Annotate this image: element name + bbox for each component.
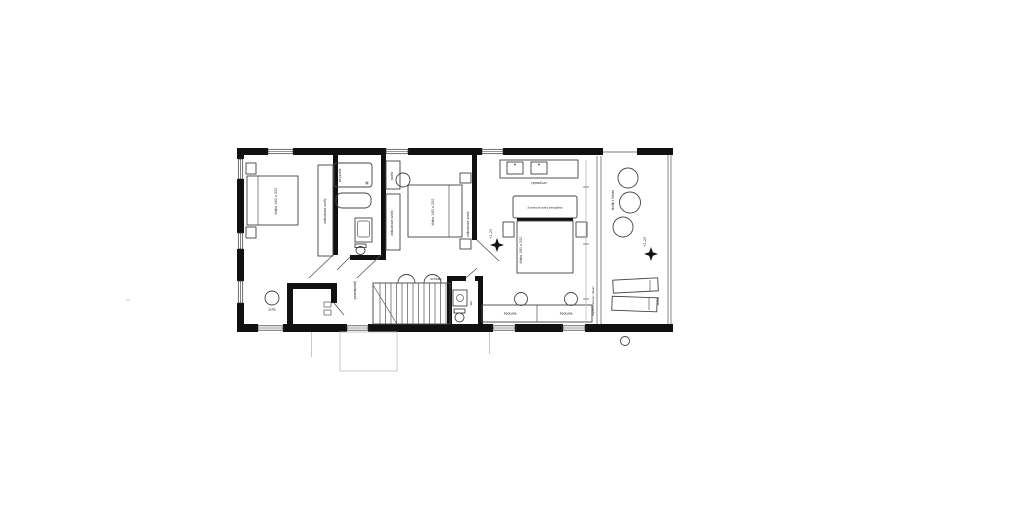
hallway-label: przedpokój	[353, 281, 357, 300]
terrace: stolik i fotele +1,20 leżaki	[603, 152, 671, 324]
wall-segment	[237, 148, 244, 159]
wall-segment	[283, 324, 347, 332]
wall-segment	[287, 283, 293, 324]
wall-segment	[585, 324, 673, 332]
sun-loungers: leżaki	[612, 278, 660, 312]
faucet	[514, 164, 516, 166]
lounger	[612, 296, 657, 312]
window	[238, 281, 242, 303]
bathtub	[336, 193, 371, 208]
wc-label: WC	[469, 300, 473, 305]
nightstand	[460, 173, 471, 183]
nightstand	[503, 222, 514, 237]
window	[238, 159, 242, 179]
door-leaf	[334, 303, 344, 315]
decor-bowl	[565, 293, 578, 306]
exterior-walls	[237, 148, 673, 332]
washbasin	[358, 221, 370, 237]
level-master-label: +1,20	[489, 229, 493, 239]
wc-basin-bowl	[457, 295, 464, 302]
staircase: schody	[373, 275, 450, 325]
wall-segment	[637, 148, 673, 155]
wall-segment	[237, 249, 244, 281]
terrace-seating-label: stolik i fotele	[611, 190, 615, 211]
interior-walls	[287, 155, 483, 324]
pouf	[265, 291, 279, 305]
bedroom1-bed-label: łóżko 160 x 200	[274, 188, 278, 215]
vanity-counter	[500, 160, 578, 178]
wall-segment	[287, 283, 337, 289]
dresser-left-label: komoda	[504, 312, 517, 316]
wall-segment	[515, 324, 563, 332]
hallway: przedpokój	[353, 281, 357, 300]
downpipe	[621, 337, 630, 346]
decor-bowl	[515, 293, 528, 306]
window	[493, 326, 515, 330]
nightstand	[246, 227, 256, 238]
wc: WC	[453, 290, 473, 322]
wc-toilet-tank	[454, 309, 465, 313]
window	[258, 326, 283, 330]
vanity-label: umywalki	[531, 181, 546, 185]
wc-washbasin	[453, 290, 467, 306]
bed	[408, 185, 462, 237]
level-terrace-label: +1,20	[643, 237, 647, 247]
glazed-wall	[597, 156, 601, 324]
outside-elements	[126, 300, 630, 371]
drawing-sheet: łóżko 160 x 200 zabudowa szafy pufa prys…	[0, 0, 1024, 523]
shower-label: prysznic	[338, 168, 342, 181]
window	[268, 149, 293, 153]
window	[563, 326, 585, 330]
dresser-right-label: komoda	[560, 312, 573, 316]
entry-porch	[340, 332, 397, 371]
chair-backrest-arc	[614, 217, 629, 223]
master-bed-label: łóżko 180 x 200	[519, 237, 523, 264]
bedroom1-wardrobe-label: zabudowa szafy	[323, 198, 327, 224]
round-table	[620, 192, 641, 213]
bathroom: prysznic	[334, 163, 372, 255]
window	[238, 233, 242, 249]
window	[386, 149, 408, 153]
shelf	[324, 310, 331, 315]
bedroom2-wardrobe-right-label: zabudowa szafy	[466, 211, 470, 237]
door-leaf	[309, 255, 333, 278]
wall-segment	[237, 179, 244, 233]
shower-drain	[366, 182, 368, 184]
lounger	[613, 278, 659, 293]
window	[482, 149, 503, 153]
nightstand	[246, 163, 256, 174]
wall-segment	[503, 148, 603, 155]
bed	[247, 176, 298, 225]
stair-treads	[380, 283, 446, 324]
bedroom2-closet-label: szafa	[390, 172, 394, 180]
pouf-label: pufa	[268, 308, 275, 312]
stairs-winder-line	[373, 285, 397, 324]
wall-segment	[293, 148, 386, 155]
loungers-label: leżaki	[656, 297, 660, 306]
wall-segment	[472, 155, 477, 240]
wc-toilet-bowl	[455, 313, 464, 322]
storage-room	[324, 302, 331, 315]
nightstand	[576, 222, 587, 237]
railing-arc	[398, 275, 415, 284]
toilet-tank	[355, 244, 366, 248]
window	[347, 326, 368, 330]
floor-plan-drawing: łóżko 160 x 200 zabudowa szafy pufa prys…	[0, 0, 1024, 523]
wall-segment	[331, 283, 337, 303]
bedroom2-bed-label: łóżko 160 x 200	[431, 199, 435, 226]
bedroom2: szafa zabudowa szafy łóżko 160 x 200 zab…	[386, 161, 471, 250]
wall-segment	[475, 276, 483, 281]
faucet	[538, 164, 540, 166]
door-leaf	[337, 257, 350, 270]
level-marker-star	[644, 247, 658, 261]
wall-segment	[237, 303, 244, 332]
master-bedroom: umywalki zagłówek tapicerowany łóżko 180…	[482, 160, 595, 322]
chair-backrest-arc	[619, 168, 634, 174]
bedroom2-wardrobe-left-label: zabudowa szafy	[390, 210, 394, 236]
wall-segment	[408, 148, 482, 155]
nightstand	[460, 239, 471, 249]
headboard-label: zagłówek tapicerowany	[527, 206, 562, 210]
shelf	[324, 302, 331, 307]
bed	[517, 221, 573, 273]
wall-segment	[381, 155, 386, 255]
stairs-label: schody	[430, 277, 441, 281]
wall-segment	[368, 324, 493, 332]
floor-finish-label: wykończenie: deski	[591, 286, 595, 315]
